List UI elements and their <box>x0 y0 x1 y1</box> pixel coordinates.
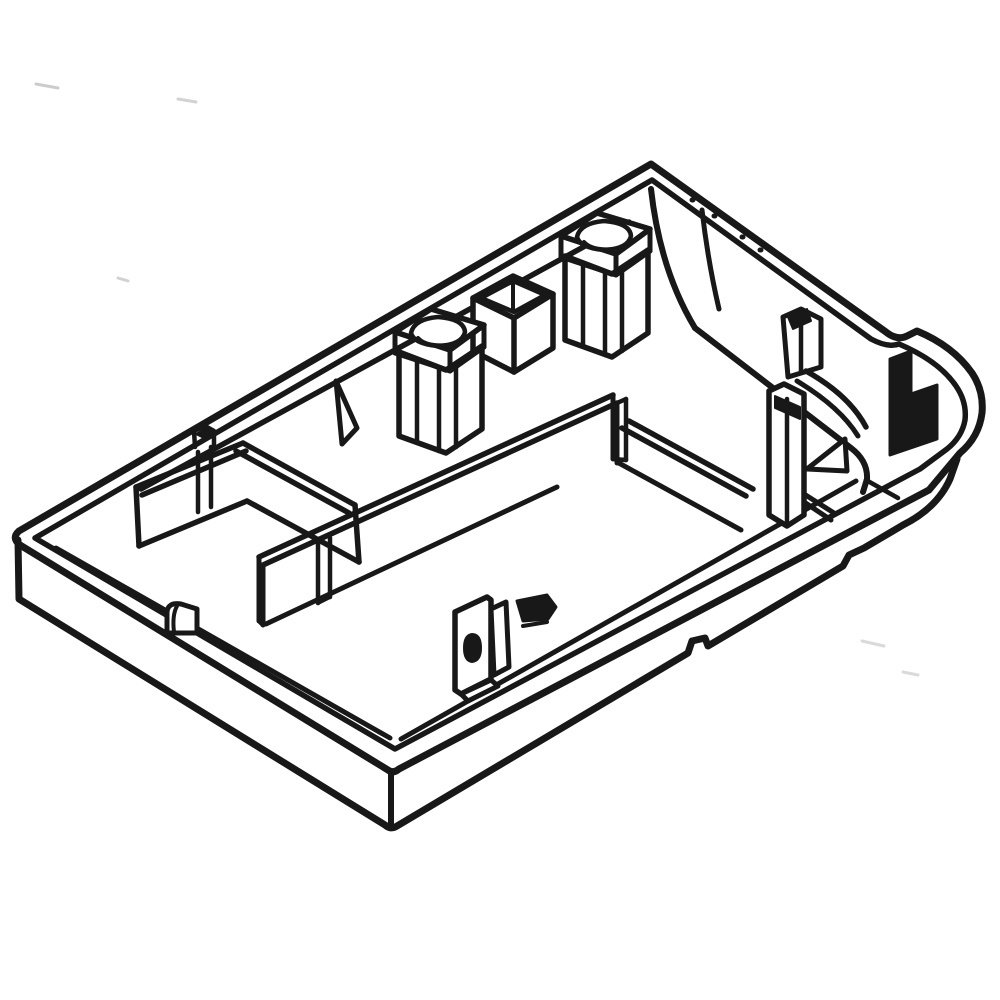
scan-speck-4 <box>862 641 884 646</box>
bracket-clip <box>517 595 556 621</box>
left-box-far-wall-left-end <box>136 487 139 546</box>
floor-bump <box>167 604 197 633</box>
central-partition-left-end-bottom <box>259 621 263 625</box>
base-pan-isometric-drawing <box>0 0 1000 1000</box>
scan-speck-3 <box>118 278 128 281</box>
bracket-hole <box>464 634 481 662</box>
scan-speck-2 <box>178 99 196 102</box>
central-partition-right-end-bottom <box>613 459 626 460</box>
diagram-canvas <box>0 0 1000 1000</box>
scan-speck-1 <box>36 84 58 88</box>
bracket-side <box>491 602 509 675</box>
scan-speck-5 <box>903 672 918 675</box>
